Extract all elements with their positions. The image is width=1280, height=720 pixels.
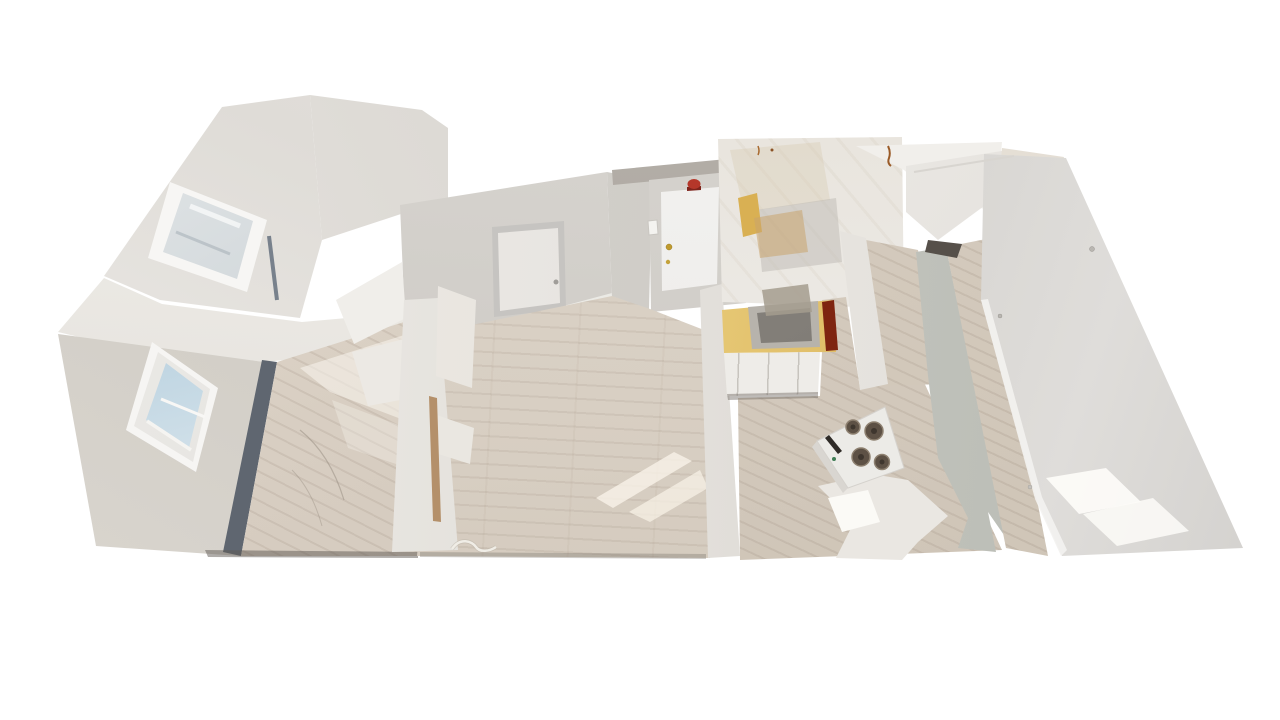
baseboard-channel (0, 0, 1280, 720)
stove-side-panel (812, 441, 848, 493)
center-partition-wall (0, 0, 1280, 720)
scan-wire-artifact-2 (292, 470, 322, 526)
wall-screw-dot (1028, 485, 1032, 489)
kitchen-hallway-partition (0, 0, 1280, 720)
closet-door-frame (0, 0, 1280, 720)
burner-icon (875, 455, 890, 470)
door-frame-line (914, 156, 1014, 172)
fire-alarm-base (687, 186, 701, 191)
burner-icon (865, 422, 883, 440)
bedroom-lower-window-frame (0, 0, 1280, 720)
right-room-floor-strip (0, 0, 1280, 720)
living-baseboard (0, 0, 1280, 720)
window-sill-highlight (147, 421, 191, 450)
bedroom-lower-sun-patch (0, 0, 1280, 720)
closet-doorknob (554, 280, 559, 285)
bedroom-upper-window-frame (0, 0, 1280, 720)
living-floor-cut-shadow (0, 0, 1280, 720)
beige-wall-wedge (0, 0, 1280, 720)
torn-scan-mesh (0, 0, 1280, 720)
sink-rim (0, 0, 1280, 720)
light-switch (648, 220, 658, 235)
rust-speck-2 (758, 146, 759, 155)
bedroom-lower-window-recess (0, 0, 1280, 720)
window-shade-streak (176, 232, 230, 254)
right-wall-sun-patch (0, 0, 1280, 720)
bedroom-upper-left-wall (0, 0, 1280, 720)
kitchen-left-wall (0, 0, 1280, 720)
doorknob-icon (666, 260, 670, 264)
bedroom-lower-cut-shadow (0, 0, 1280, 720)
entry-door-wall (0, 0, 1280, 720)
stove-cooktop (817, 407, 904, 488)
stove-indicator-dot (832, 457, 836, 461)
closet-door (0, 0, 1280, 720)
front-door (0, 0, 1280, 720)
torn-mesh-light-patch (0, 0, 1280, 720)
kitchen-scan-mottle (0, 0, 1280, 720)
wall-screw-dot (1090, 247, 1095, 252)
bedroom-upper-window-glass (0, 0, 1280, 720)
bedroom-upper-back-wall (0, 0, 1280, 720)
dollhouse-3d-view[interactable] (0, 0, 1280, 720)
kitchen-countertop (0, 0, 1280, 720)
entry-top-band (0, 0, 1280, 720)
window-sash-bar (161, 399, 205, 417)
right-room-near-wall (0, 0, 1280, 720)
partition-door-panel (0, 0, 1280, 720)
partition-door-panel-2 (0, 0, 1280, 720)
diagonal-door-panel (0, 0, 1280, 720)
floor-cord (452, 541, 496, 551)
countertop-burn-streak (0, 0, 1280, 720)
burner-center (851, 425, 856, 430)
burner-center (858, 454, 864, 460)
bedroom-lower-exterior-wall (0, 0, 1280, 720)
stove (812, 407, 904, 493)
doorway-shadow-gap (0, 0, 1280, 720)
window-dark-sliver (269, 236, 277, 300)
torn-scan-piece-2 (0, 0, 1280, 720)
wood-post (0, 0, 1280, 720)
bedroom-lower-sun-patch-2 (0, 0, 1280, 720)
bedroom-upper-floor-sliver (0, 0, 1280, 720)
burner-icon (852, 448, 870, 466)
scan-detail-overlay (0, 0, 1280, 720)
kitchen-yellow-streak (0, 0, 1280, 720)
burner-icon (846, 420, 860, 434)
kitchen-lower-cabinets (0, 0, 1280, 720)
fire-alarm-icon (688, 179, 701, 189)
sink-basin (0, 0, 1280, 720)
living-back-wall (0, 0, 1280, 720)
right-wall-edge-rim (0, 0, 1280, 720)
scan-wire-artifact (300, 430, 344, 500)
cabinet-base-shadow (0, 0, 1280, 720)
hallway-floor (0, 0, 1280, 720)
living-room-floor (0, 0, 1280, 720)
entry-left-wall (0, 0, 1280, 720)
closet-track-strip-2 (0, 0, 1280, 720)
kitchen-wood-shelf (0, 0, 1280, 720)
rust-speck-3 (771, 149, 774, 152)
right-room-sunlit-wall (0, 0, 1280, 720)
top-right-ceiling-slab (0, 0, 1280, 720)
wall-screw-dot (998, 314, 1002, 318)
rust-speck (888, 146, 891, 166)
bedroom-lower-window-glass (0, 0, 1280, 720)
burner-center (880, 460, 885, 465)
deadbolt-icon (666, 244, 672, 250)
living-sunlight-streak (0, 0, 1280, 720)
bedroom-lower-floor (0, 0, 1280, 720)
living-sunlight-streak-2 (0, 0, 1280, 720)
floor-cord-shadow (452, 541, 496, 551)
right-wall-sun-patch-2 (0, 0, 1280, 720)
torn-scan-piece (0, 0, 1280, 720)
sink-scan-blur (0, 0, 1280, 720)
shared-wall-top-band (0, 0, 1280, 720)
kitchen-upper-cabinets (0, 0, 1280, 720)
stove-control-strip (825, 435, 842, 454)
burner-center (871, 428, 877, 434)
closet-track-strip (0, 0, 1280, 720)
window-reflection-streak (190, 206, 240, 226)
kitchen-floor (0, 0, 1280, 720)
kitchen-shelf-shadows (0, 0, 1280, 720)
